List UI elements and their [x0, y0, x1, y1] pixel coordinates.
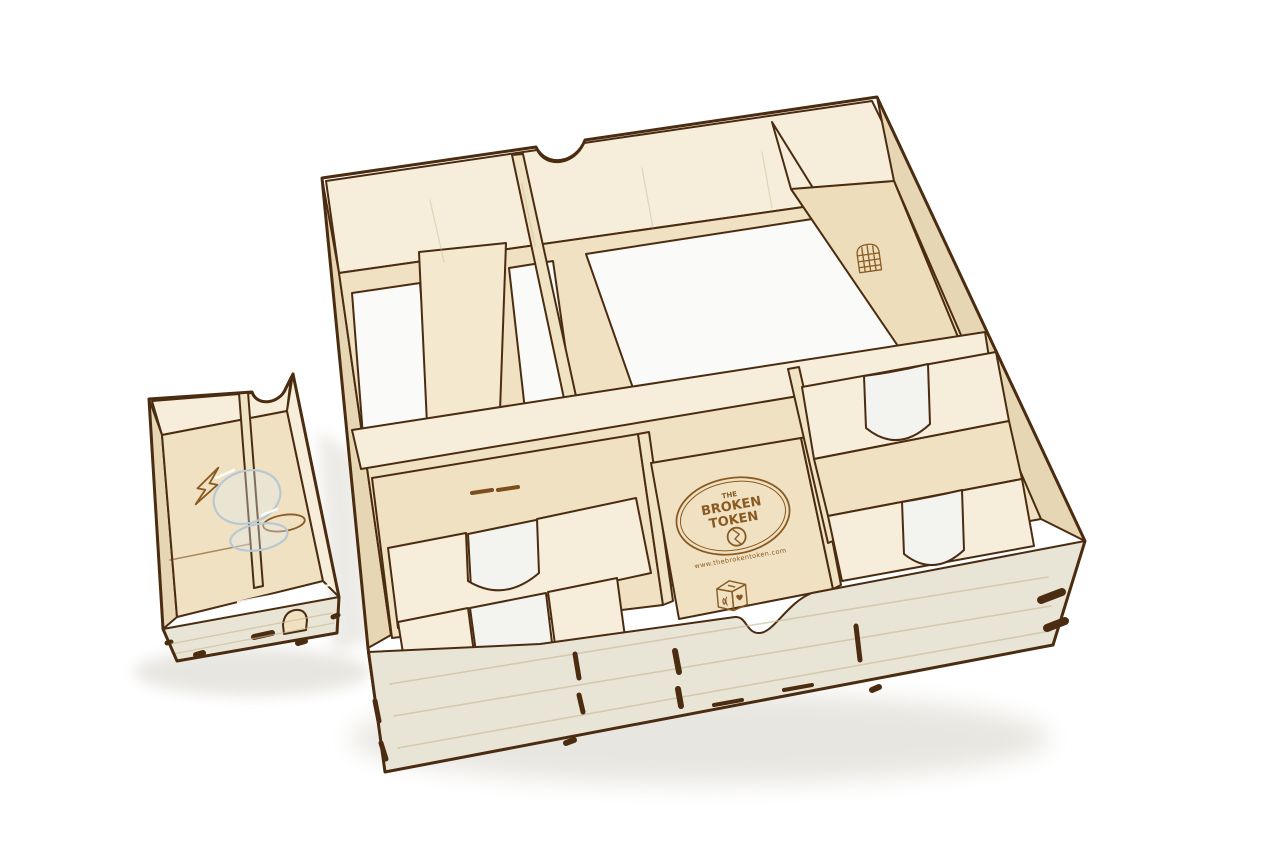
notch-cutout — [864, 364, 930, 440]
joint-slot — [566, 740, 574, 743]
notch-cutout — [902, 490, 964, 565]
joint-slot — [872, 687, 879, 690]
accessory-tray-shadow — [134, 648, 370, 696]
main-organizer: THE BROKEN TOKEN www.thebrokentoken.com — [322, 97, 1085, 772]
joint-slot — [298, 641, 305, 643]
joint-slot — [675, 651, 679, 672]
joint-slot — [678, 689, 681, 706]
acrylic-glint — [154, 369, 286, 393]
product-photo: Laser-cut birch plywood board game box o… — [0, 0, 1280, 853]
joint-slot — [196, 653, 203, 655]
accessory-tray — [149, 369, 339, 661]
card-ramp-strip — [419, 243, 506, 424]
photo-canvas: THE BROKEN TOKEN www.thebrokentoken.com — [0, 0, 1280, 853]
